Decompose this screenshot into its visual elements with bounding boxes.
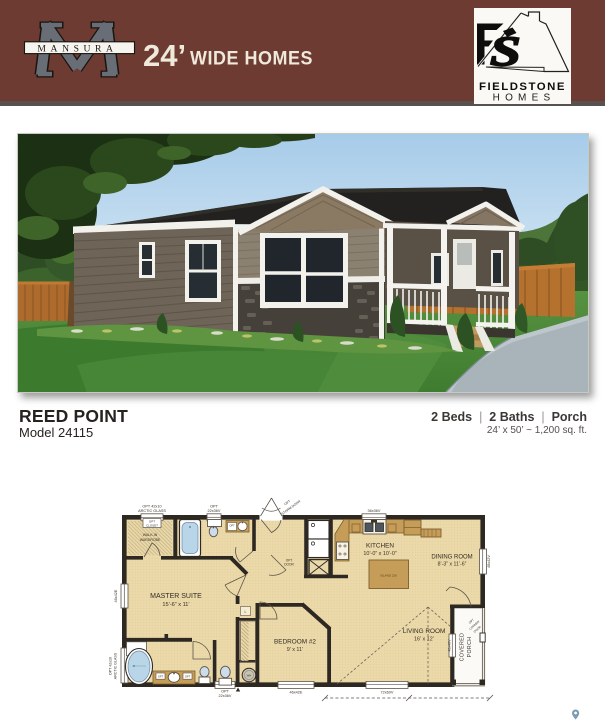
svg-text:22x36V: 22x36V <box>219 694 232 698</box>
svg-text:DOOR: DOOR <box>284 563 294 567</box>
svg-text:KITCHEN: KITCHEN <box>366 543 394 550</box>
svg-text:OPT 42x10: OPT 42x10 <box>142 505 161 509</box>
svg-text:FIELDSTONE: FIELDSTONE <box>479 81 566 93</box>
svg-text:MASTER SUITE: MASTER SUITE <box>150 593 202 600</box>
svg-text:OPT: OPT <box>229 524 235 528</box>
svg-text:WH: WH <box>247 674 252 678</box>
svg-text:STORM DOOR: STORM DOOR <box>281 499 302 516</box>
svg-text:CLOSET: CLOSET <box>146 523 158 527</box>
svg-text:WALK-IN: WALK-IN <box>143 533 158 537</box>
svg-text:ARCTIC GLASS: ARCTIC GLASS <box>114 652 118 679</box>
svg-text:S: S <box>490 28 521 75</box>
svg-text:BEDROOM #2: BEDROOM #2 <box>274 639 316 646</box>
svg-text:72x60V: 72x60V <box>381 691 394 695</box>
svg-text:10’-0” x 10’-0”: 10’-0” x 10’-0” <box>363 551 396 557</box>
svg-text:OPT: OPT <box>221 690 229 694</box>
svg-text:9’ x 11’: 9’ x 11’ <box>287 647 303 653</box>
svg-text:COVERED: COVERED <box>460 633 466 661</box>
svg-text:WIDE HOMES: WIDE HOMES <box>190 47 313 69</box>
svg-text:OPT: OPT <box>158 674 164 678</box>
svg-text:46x42V: 46x42V <box>487 555 491 568</box>
svg-text:PORCH: PORCH <box>467 637 473 658</box>
svg-text:15’-6” x 11’: 15’-6” x 11’ <box>162 602 189 608</box>
svg-text:OPT 42x10: OPT 42x10 <box>109 657 113 675</box>
svg-text:L: L <box>245 610 247 614</box>
svg-text:22x36V: 22x36V <box>208 509 221 513</box>
svg-text:46x42E: 46x42E <box>290 691 303 695</box>
svg-text:LIVING ROOM: LIVING ROOM <box>403 628 446 635</box>
svg-text:46x42E: 46x42E <box>114 589 118 602</box>
svg-text:ISLAND 216: ISLAND 216 <box>380 574 397 578</box>
svg-text:16’ x 12’: 16’ x 12’ <box>414 637 434 643</box>
svg-text:DINING ROOM: DINING ROOM <box>431 555 472 561</box>
svg-text:HOMES: HOMES <box>493 92 556 103</box>
svg-text:8’-3” x 11’-6”: 8’-3” x 11’-6” <box>438 562 467 568</box>
svg-text:ARCTIC GLASS: ARCTIC GLASS <box>138 509 166 513</box>
svg-text:WARDROBE: WARDROBE <box>140 538 161 542</box>
svg-text:OPT: OPT <box>185 674 191 678</box>
svg-text:46x40V: 46x40V <box>448 639 452 652</box>
svg-text:36x36V: 36x36V <box>368 509 381 513</box>
svg-text:MANSURA: MANSURA <box>37 43 117 54</box>
svg-text:24’: 24’ <box>143 38 186 73</box>
svg-text:OPT: OPT <box>210 505 218 509</box>
